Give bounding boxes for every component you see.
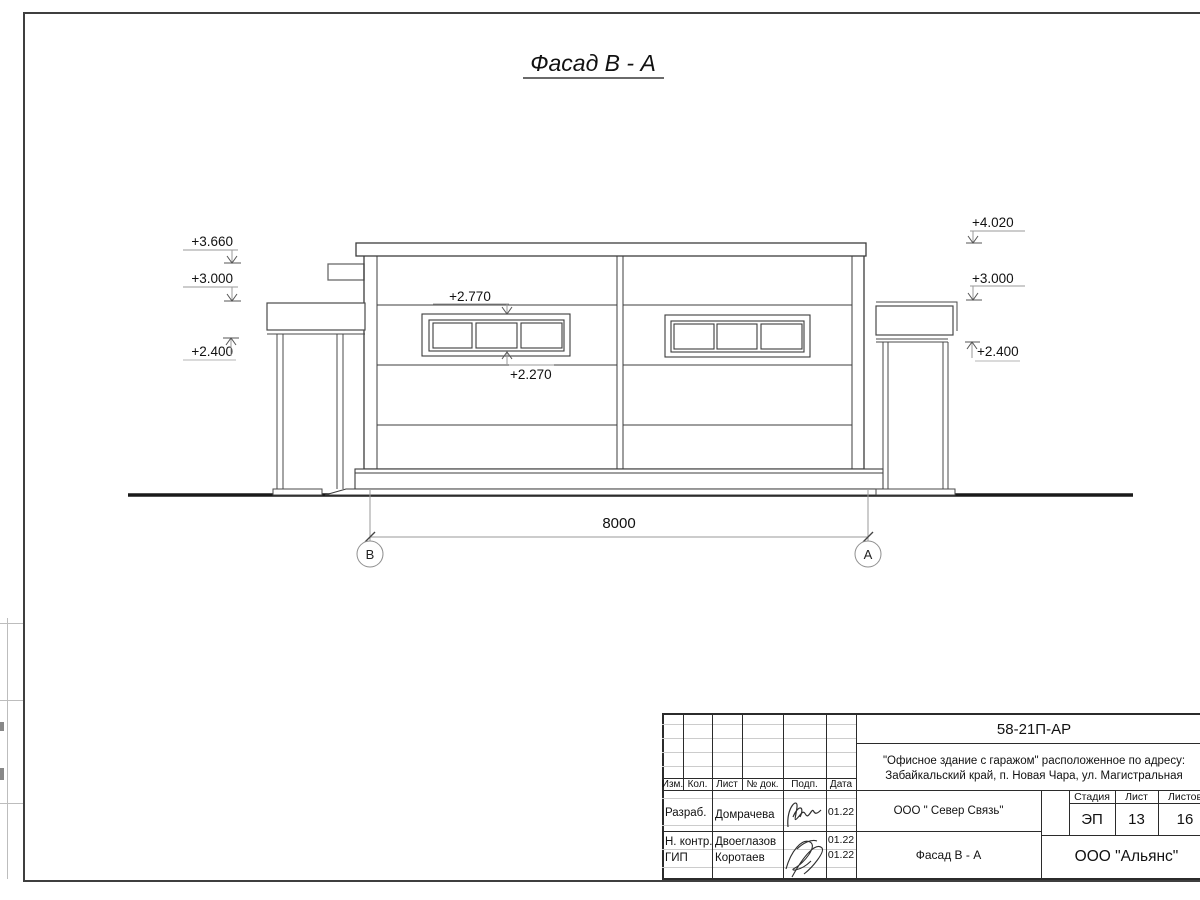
window-left-pane-2	[476, 323, 517, 348]
tb-date-razrab: 01.22	[826, 804, 856, 819]
elevation-mark-2400-left: +2.400	[183, 338, 239, 360]
tb-sheet-value: 13	[1115, 803, 1158, 835]
tb-date-nkontr: 01.22	[826, 833, 856, 847]
tb-role-razrab: Разраб.	[662, 805, 715, 821]
tb-project-address-line2: Забайкальский край, п. Новая Чара, ул. М…	[859, 769, 1200, 784]
axis-label-b: В	[366, 547, 375, 562]
elevation-mark-4020: +4.020	[966, 215, 1025, 243]
tb-doc-number: 58-21П-АР	[856, 715, 1200, 743]
tb-date-gip: 01.22	[826, 848, 856, 862]
tb-name-nkontr: Двоеглазов	[712, 834, 786, 849]
tb-col-data: Дата	[826, 778, 856, 790]
signatures	[783, 791, 826, 880]
tb-project-address: "Офисное здание с гаражом" расположенное…	[859, 754, 1200, 788]
right-canopy	[876, 302, 957, 495]
svg-text:+2.400: +2.400	[191, 344, 233, 359]
svg-text:+2.400: +2.400	[977, 344, 1019, 359]
tb-sheet-label: Лист	[1115, 790, 1158, 803]
elevation-marks-left: +3.660 +3.000 +2.400	[183, 234, 241, 360]
signature-razrab	[788, 803, 821, 827]
svg-text:+3.000: +3.000	[972, 271, 1014, 286]
tb-role-nkontr: Н. контр.	[662, 834, 715, 849]
drawing-sheet: { "drawing": { "title": "Фасад В - А", "…	[0, 0, 1200, 900]
roof-parapet	[356, 243, 866, 256]
foundation	[325, 489, 912, 495]
right-canopy-slab	[876, 306, 953, 335]
left-canopy	[267, 303, 365, 495]
tb-stage-value: ЭП	[1069, 803, 1115, 835]
left-canopy-base	[273, 489, 322, 495]
elevation-mark-3660: +3.660	[183, 234, 241, 263]
svg-text:+4.020: +4.020	[972, 215, 1014, 230]
tb-customer: ООО " Север Связь"	[856, 790, 1041, 831]
roof-vent-protrusion	[328, 264, 364, 280]
dimension-value: 8000	[602, 515, 635, 532]
tb-col-izm: Изм.	[662, 778, 683, 790]
tb-col-doc: № док.	[742, 778, 783, 790]
tb-col-kol: Кол.	[683, 778, 712, 790]
window-right-pane-1	[674, 324, 714, 349]
tb-sheets-value: 16	[1158, 803, 1200, 835]
window-right-pane-3	[761, 324, 802, 349]
window-left-pane-3	[521, 323, 562, 348]
tb-sheet-title: Фасад В - А	[856, 831, 1041, 878]
signature-gip-nkontr	[786, 840, 822, 877]
elevation-marks-right: +4.020 +3.000 +2.400	[965, 215, 1025, 361]
elevation-mark-3000-right: +3.000	[966, 271, 1025, 300]
window-left	[422, 314, 570, 356]
drawing-title: Фасад В - А	[530, 50, 656, 76]
right-canopy-base	[876, 489, 955, 495]
tb-col-list: Лист	[712, 778, 742, 790]
tb-designer-org: ООО "Альянс"	[1041, 835, 1200, 878]
tb-stage-label: Стадия	[1069, 790, 1115, 803]
elevation-mark-2400-right: +2.400	[965, 342, 1020, 361]
tb-name-gip: Коротаев	[712, 850, 786, 865]
left-canopy-slab	[267, 303, 365, 330]
window-left-pane-1	[433, 323, 472, 348]
tb-col-podp: Подп.	[783, 778, 826, 790]
svg-text:+2.270: +2.270	[510, 367, 552, 382]
tb-project-address-line1: "Офисное здание с гаражом" расположенное…	[859, 754, 1200, 769]
drawing-title-group: Фасад В - А	[523, 50, 664, 78]
elevation-mark-window-top: +2.770	[433, 289, 512, 314]
window-right-pane-2	[717, 324, 757, 349]
tb-name-razrab: Домрачева	[712, 807, 786, 823]
axis-label-a: А	[864, 547, 873, 562]
tb-sheets-label: Листов	[1158, 790, 1200, 803]
building-facade	[325, 243, 912, 495]
svg-text:+3.000: +3.000	[191, 271, 233, 286]
elevation-mark-3000-left: +3.000	[183, 271, 241, 301]
dimension-8000: 8000 В А	[357, 490, 881, 567]
window-right	[665, 315, 810, 357]
svg-text:+2.770: +2.770	[449, 289, 491, 304]
tb-role-gip: ГИП	[662, 850, 715, 865]
plinth	[355, 469, 883, 489]
title-block: Изм. Кол. Лист № док. Подп. Дата Разраб.…	[662, 713, 1200, 880]
svg-text:+3.660: +3.660	[191, 234, 233, 249]
